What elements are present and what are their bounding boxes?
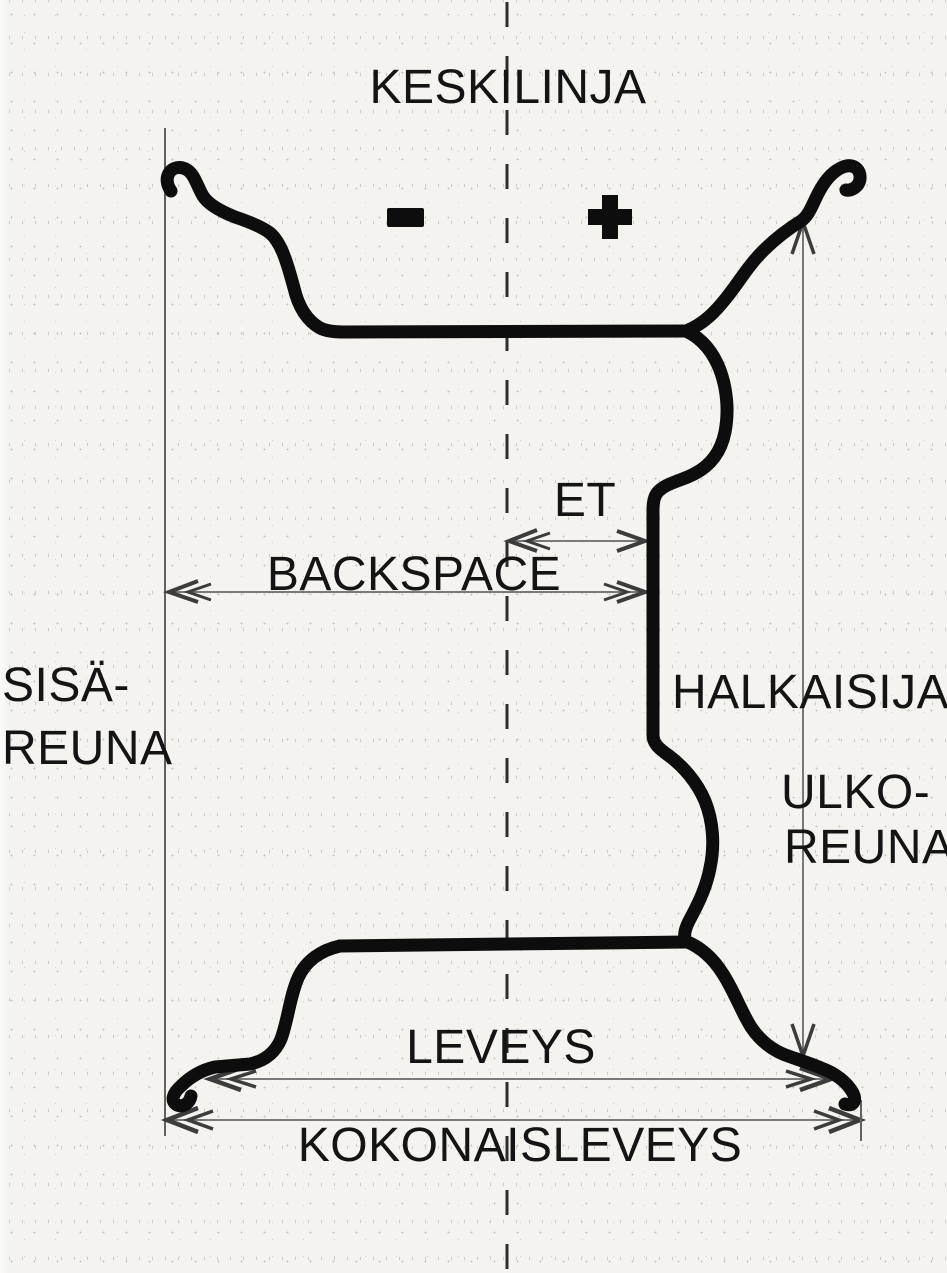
minus-icon bbox=[387, 208, 424, 227]
rim-top-right-flange bbox=[686, 166, 860, 331]
diagram-drawing bbox=[0, 0, 947, 1273]
rim-bottom-well bbox=[340, 942, 686, 946]
label-halkaisija: HALKAISIJA bbox=[672, 669, 947, 717]
rim-top-left-flange bbox=[167, 168, 688, 332]
label-backspace: BACKSPACE bbox=[267, 551, 561, 599]
label-ulko-reuna-line2: REUNA bbox=[784, 824, 947, 872]
label-sisa-reuna-line1: SISÄ- bbox=[2, 662, 130, 710]
rim-profile bbox=[167, 166, 860, 1106]
label-sisa-reuna-line2: REUNA bbox=[2, 725, 173, 773]
plus-icon bbox=[588, 195, 632, 239]
label-ulko-reuna-line1: ULKO- bbox=[781, 769, 930, 817]
label-keskilinja: KESKILINJA bbox=[369, 64, 646, 112]
label-kokonaisleveys: KOKONAISLEVEYS bbox=[298, 1122, 743, 1170]
wheel-rim-diagram: KESKILINJA ET BACKSPACE SISÄ- REUNA HALK… bbox=[0, 0, 947, 1273]
label-leveys: LEVEYS bbox=[406, 1024, 596, 1072]
outer-edge-line bbox=[792, 222, 814, 1056]
rim-barrel bbox=[653, 332, 727, 940]
label-et: ET bbox=[554, 477, 616, 525]
rim-bottom-left-flange bbox=[173, 946, 340, 1106]
